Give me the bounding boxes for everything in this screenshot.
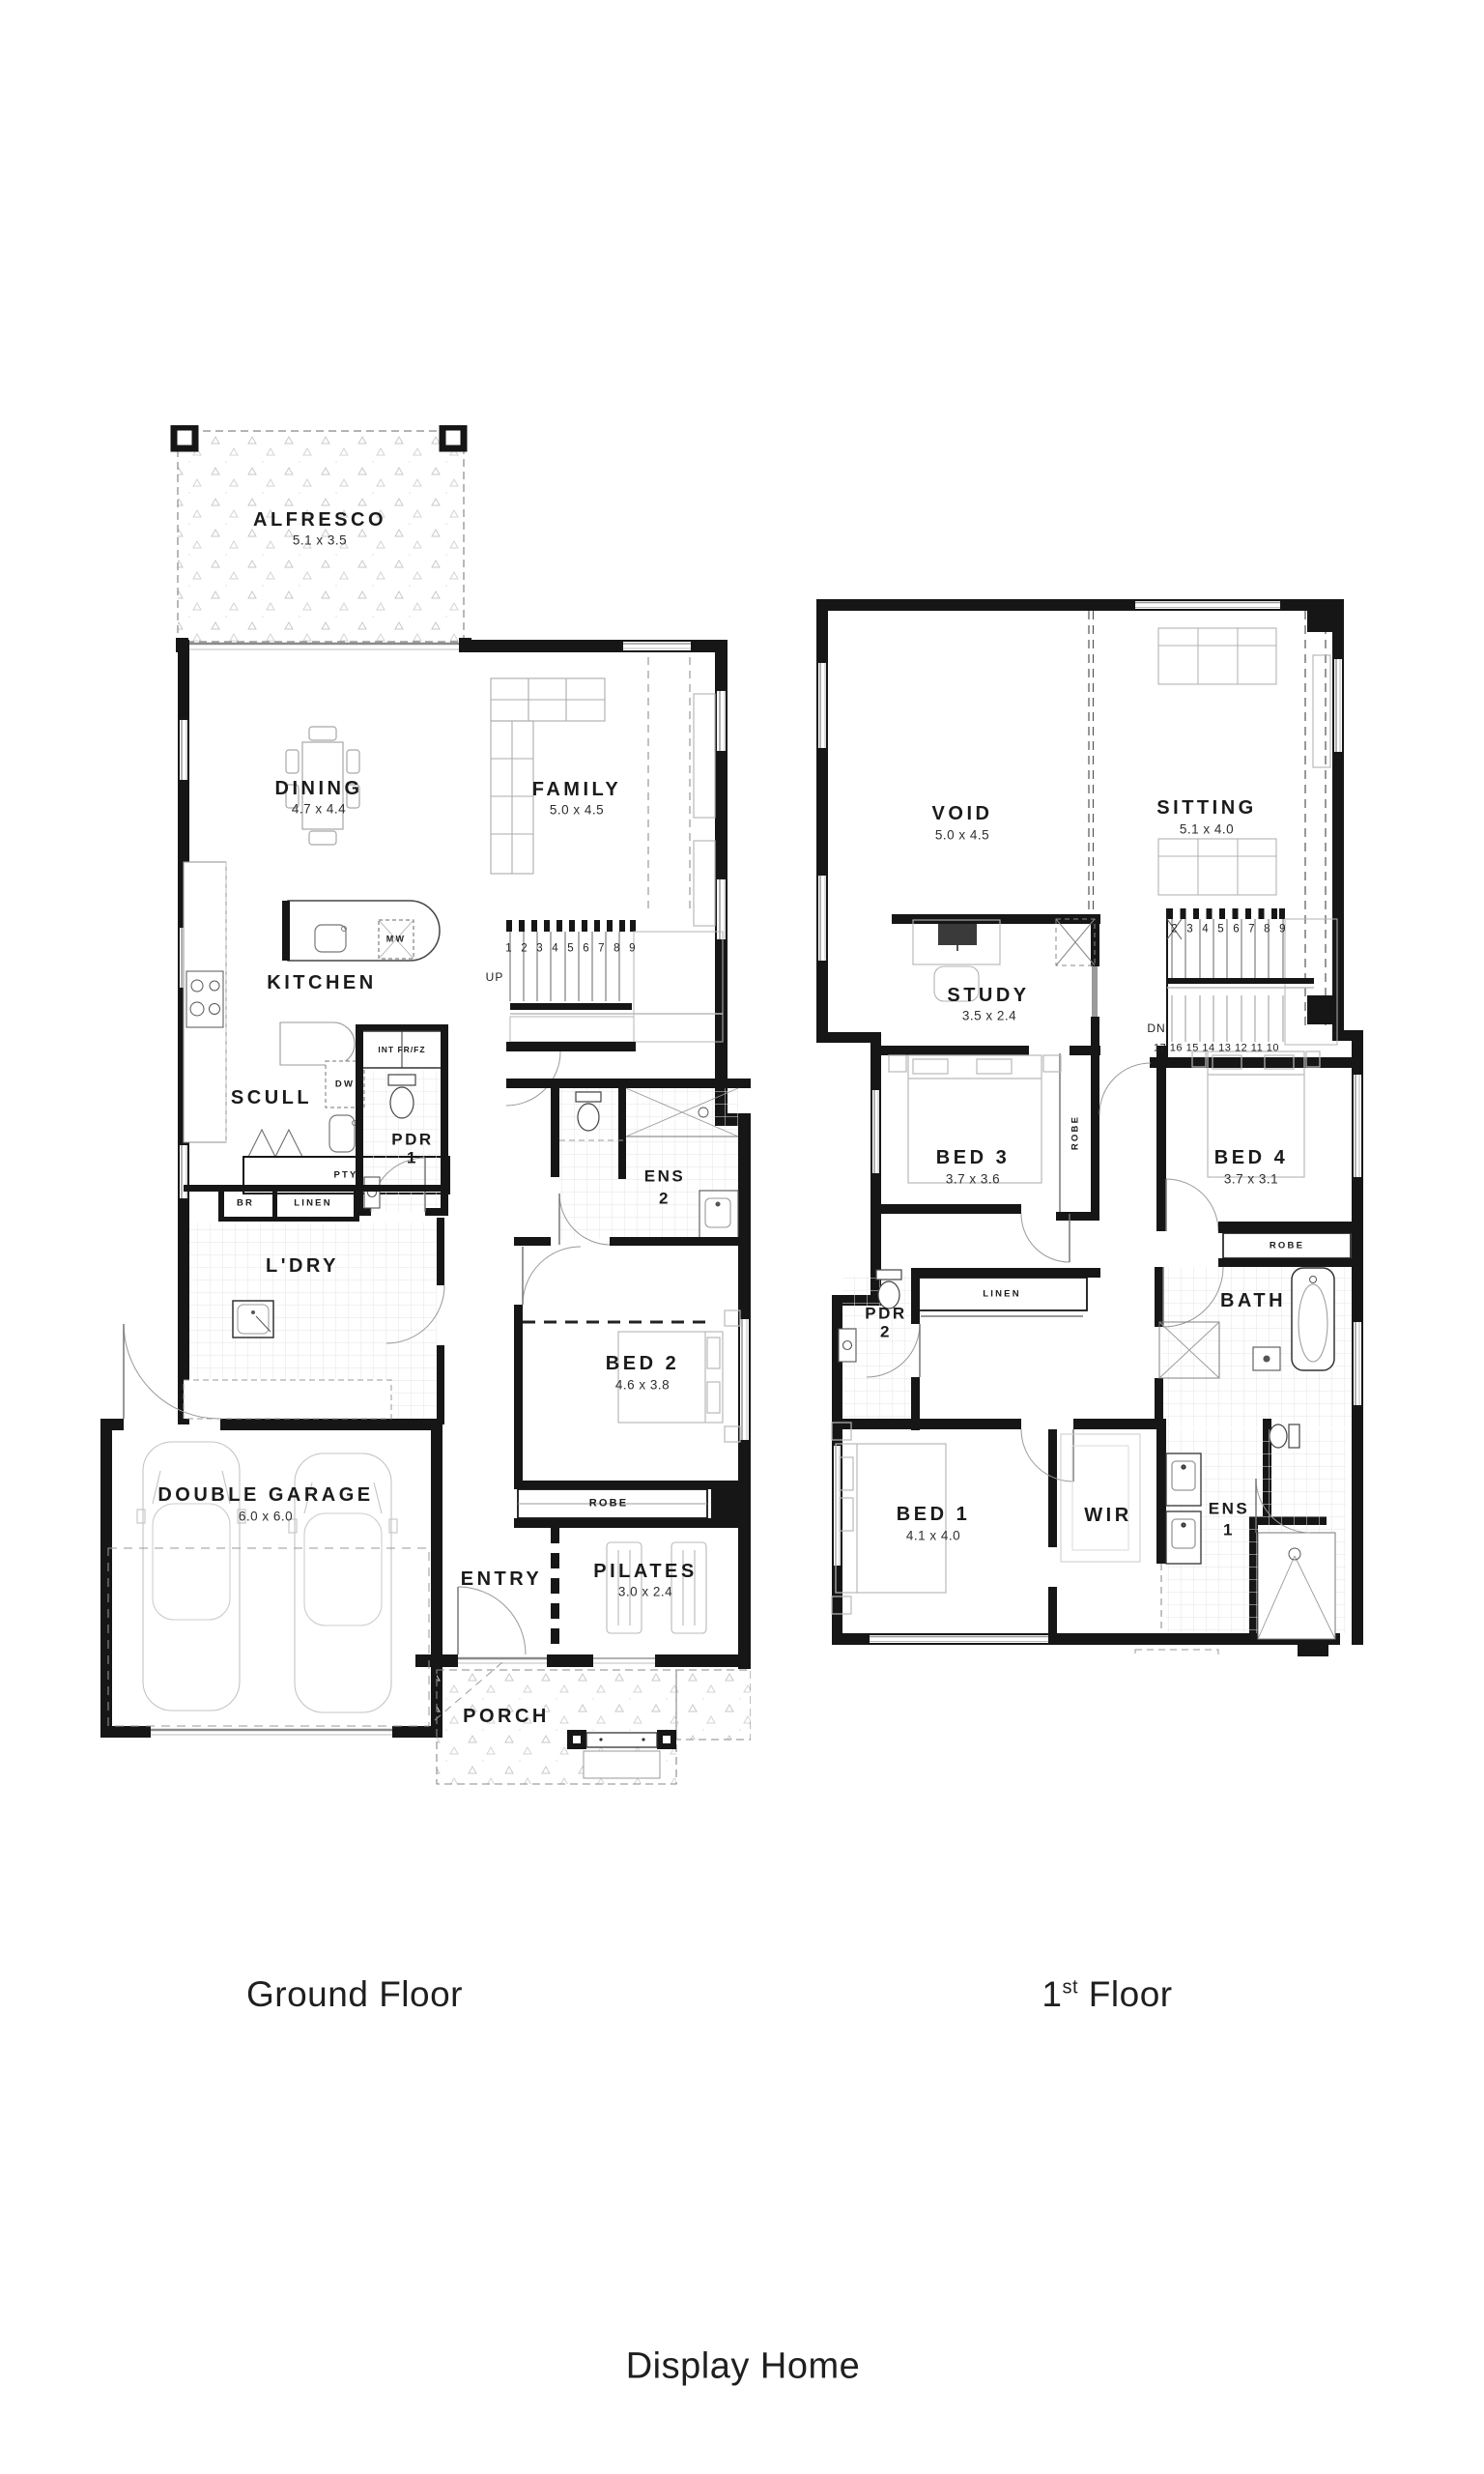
toilet xyxy=(876,1270,901,1309)
tv-unit xyxy=(694,694,715,926)
broom-label: BR xyxy=(237,1198,254,1208)
robe-label-bed4: ROBE xyxy=(1270,1241,1304,1251)
first-room-label-study: STUDY xyxy=(947,986,1029,1005)
ground-room-label-pdr1: PDR xyxy=(391,1132,433,1148)
ground-room-label-ldry: L'DRY xyxy=(266,1256,339,1276)
bed xyxy=(618,1310,740,1442)
first-floor-caption-text: Floor xyxy=(1078,1974,1173,2014)
first-room-dims-bed1: 4.1 x 4.0 xyxy=(906,1529,960,1542)
ground-room-dims-dining: 4.7 x 4.4 xyxy=(292,802,346,816)
ground-room-label-scull: SCULL xyxy=(231,1088,312,1108)
ceiling-dash-lines xyxy=(648,657,690,913)
family-sofa xyxy=(491,678,605,874)
door-arc xyxy=(1021,1429,1073,1482)
dishwasher-label: DW xyxy=(335,1079,355,1089)
balcony-dash xyxy=(1135,1650,1218,1657)
first-room-label-bed4: BED 4 xyxy=(1214,1148,1288,1167)
basin xyxy=(839,1329,856,1362)
stair-numbers-first-up: 2 3 4 5 6 7 8 9 xyxy=(1171,924,1289,935)
sitting-sofa xyxy=(1158,839,1276,895)
first-room-label-bed1: BED 1 xyxy=(897,1505,970,1524)
ensuite-1 xyxy=(1166,1424,1346,1639)
ground-floor-plan: ALFRESCO 5.1 x 3.5 DINING 4.7 x 4.4 FAMI… xyxy=(97,425,751,1798)
void-divider-dash xyxy=(1089,611,1094,914)
porch-area xyxy=(437,1670,751,1784)
first-floor-plan-drawing xyxy=(816,599,1363,1657)
ground-room-label-garage: DOUBLE GARAGE xyxy=(157,1485,373,1505)
monitor xyxy=(938,924,977,945)
ground-room-label-family: FAMILY xyxy=(532,780,622,799)
stair-numbers-first-down: 17 16 15 14 13 12 11 10 xyxy=(1154,1044,1279,1054)
basin xyxy=(364,1177,380,1208)
first-room-label-ens1: ENS xyxy=(1209,1501,1249,1517)
kitchen-bench xyxy=(184,862,226,1142)
linen-label-ground: LINEN xyxy=(294,1198,332,1208)
ground-room-label-dining: DINING xyxy=(275,779,363,798)
vanity xyxy=(699,1191,738,1241)
ground-room-dims-garage: 6.0 x 6.0 xyxy=(239,1510,293,1523)
front-door xyxy=(458,1587,526,1654)
robe-label-bed2: ROBE xyxy=(589,1499,629,1510)
laundry-bench xyxy=(184,1380,391,1419)
bathroom xyxy=(1155,1223,1355,1427)
shower xyxy=(1258,1533,1335,1639)
powder-room-2 xyxy=(839,1268,920,1430)
first-room-label-sitting: SITTING xyxy=(1156,798,1256,818)
first-room-num-pdr2: 2 xyxy=(880,1324,892,1340)
ground-room-label-pilates: PILATES xyxy=(593,1562,697,1581)
first-room-label-void: VOID xyxy=(932,804,993,823)
stairs-down-label: DN xyxy=(1147,1022,1165,1034)
first-floor-plan: VOID 5.0 x 4.5 SITTING 5.1 x 4.0 2 3 4 5… xyxy=(816,599,1363,1657)
first-room-label-bed3: BED 3 xyxy=(936,1148,1010,1167)
door-arc xyxy=(1021,1214,1070,1262)
first-room-dims-bed3: 3.7 x 3.6 xyxy=(946,1172,1000,1186)
microwave-label: MW xyxy=(386,935,406,944)
bathtub xyxy=(1292,1268,1334,1370)
first-room-label-wir: WIR xyxy=(1084,1506,1131,1525)
kitchen-island xyxy=(282,901,440,961)
first-floor-caption: 1st Floor xyxy=(1042,1974,1172,2015)
first-room-dims-void: 5.0 x 4.5 xyxy=(935,828,989,842)
robe-bed2 xyxy=(514,1481,751,1519)
wardrobe-shelving xyxy=(1061,1434,1140,1562)
ground-room-dims-bed2: 4.6 x 3.8 xyxy=(615,1378,670,1392)
door-arc xyxy=(1166,1179,1218,1231)
stair-numbers-ground: 1 2 3 4 5 6 7 8 9 xyxy=(505,943,639,955)
ground-floor-caption: Ground Floor xyxy=(246,1974,463,2015)
ground-room-label-alfresco: ALFRESCO xyxy=(253,510,386,530)
first-room-num-ens1: 1 xyxy=(1223,1522,1235,1539)
ground-room-label-bed2: BED 2 xyxy=(606,1354,679,1373)
toilet xyxy=(1270,1424,1299,1448)
first-room-dims-study: 3.5 x 2.4 xyxy=(962,1009,1016,1022)
toilet xyxy=(576,1092,601,1131)
garage-clearance-dash xyxy=(108,1548,429,1726)
ensuite-2 xyxy=(506,1079,751,1246)
sitting-sofa xyxy=(1158,628,1276,684)
ground-room-label-entry: ENTRY xyxy=(461,1569,543,1589)
laundry-trough xyxy=(233,1301,273,1338)
study-cupboard xyxy=(1056,919,1095,965)
first-room-label-pdr2: PDR xyxy=(865,1306,906,1322)
laundry xyxy=(184,1218,444,1424)
tv-unit xyxy=(1313,655,1330,767)
floor-plan-page: ALFRESCO 5.1 x 3.5 DINING 4.7 x 4.4 FAMI… xyxy=(0,0,1484,2474)
ground-room-num-ens2: 2 xyxy=(659,1191,671,1207)
ground-room-dims-family: 5.0 x 4.5 xyxy=(550,803,604,817)
bench-seat xyxy=(584,1733,660,1778)
stairs-up-label: UP xyxy=(486,971,504,983)
linen-label-first: LINEN xyxy=(983,1289,1021,1299)
pantry-label: PTY xyxy=(333,1170,357,1180)
study xyxy=(913,914,1099,1050)
first-room-dims-sitting: 5.1 x 4.0 xyxy=(1180,822,1234,836)
fridge-label: INT FR/FZ xyxy=(378,1046,425,1054)
robe-label-vertical: ROBE xyxy=(1070,1115,1080,1150)
first-floor-caption-number: 1 xyxy=(1042,1974,1062,2014)
ground-room-label-kitchen: KITCHEN xyxy=(267,973,376,992)
scullery-sink xyxy=(329,1115,355,1152)
ground-room-dims-alfresco: 5.1 x 3.5 xyxy=(293,533,347,547)
ground-room-label-ens2: ENS xyxy=(644,1168,685,1185)
ground-room-num-pdr1: 1 xyxy=(407,1150,418,1166)
ground-room-label-porch: PORCH xyxy=(463,1707,550,1726)
door-arc xyxy=(1099,1063,1151,1114)
page-title: Display Home xyxy=(626,2346,861,2388)
car xyxy=(137,1442,245,1711)
first-room-label-bath: BATH xyxy=(1220,1291,1286,1310)
toilet xyxy=(388,1075,415,1118)
ground-room-dims-pilates: 3.0 x 2.4 xyxy=(618,1585,672,1598)
first-room-dims-bed4: 3.7 x 3.1 xyxy=(1224,1172,1278,1186)
stairs-up xyxy=(506,920,723,1051)
vanity xyxy=(1253,1347,1280,1370)
first-floor-caption-ordinal: st xyxy=(1062,1977,1078,1999)
